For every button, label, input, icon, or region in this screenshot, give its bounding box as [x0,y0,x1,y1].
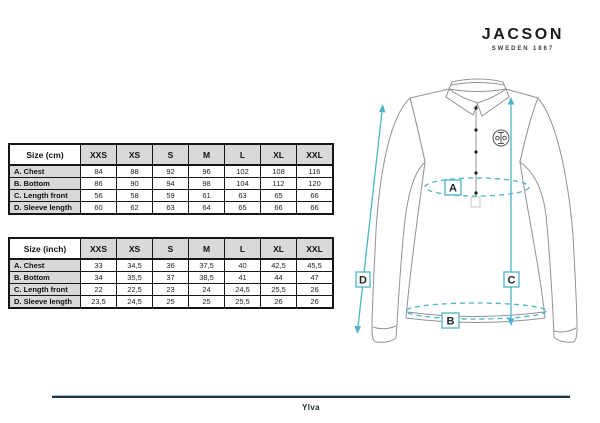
size-table-inch: Size (inch) XXS XS S M L XL XXL A. Chest… [8,237,334,309]
table-row: A. Chest 84 88 92 96 102 108 116 [9,165,333,178]
size-header: XXS [81,144,117,165]
product-name: Ylva [52,403,570,412]
table-row: C. Length front 22 22,5 23 24 24,5 25,5 … [9,284,333,296]
cell: 41 [225,272,261,284]
garment-diagram: A B C D [330,75,600,375]
size-header: XL [261,238,297,259]
cell: 94 [153,178,189,190]
cell: 23 [153,284,189,296]
cell: 26 [261,296,297,309]
cell: 65 [261,190,297,202]
table-header-row: Size (inch) XXS XS S M L XL XXL [9,238,333,259]
table-title: Size (cm) [9,144,81,165]
cell: 61 [189,190,225,202]
cell: 44 [261,272,297,284]
cell: 25,5 [225,296,261,309]
cell: 35,5 [117,272,153,284]
cell: 58 [117,190,153,202]
cell: 63 [225,190,261,202]
cell: 66 [261,202,297,215]
size-header: S [153,238,189,259]
size-header: XL [261,144,297,165]
cell: 24 [189,284,225,296]
size-header: XS [117,238,153,259]
cell: 45,5 [297,259,334,272]
brand-name: JACSON [482,27,564,43]
size-header: XXL [297,144,334,165]
row-label: A. Chest [9,259,81,272]
cell: 66 [297,202,334,215]
cell: 37 [153,272,189,284]
cell: 112 [261,178,297,190]
row-label: D. Sleeve length [9,296,81,309]
row-label: B. Bottom [9,178,81,190]
button-icon [474,128,477,131]
label-c: C [508,275,516,287]
brand-tagline: SWEDEN 1867 [482,46,564,52]
cell: 22,5 [117,284,153,296]
cell: 64 [189,202,225,215]
cell: 25 [153,296,189,309]
table-row: B. Bottom 34 35,5 37 38,5 41 44 47 [9,272,333,284]
arrow-up-icon [379,104,386,113]
row-label: B. Bottom [9,272,81,284]
cell: 59 [153,190,189,202]
cell: 84 [81,165,117,178]
size-header: L [225,144,261,165]
button-icon [474,171,477,174]
size-guide-page: JACSON SWEDEN 1867 Size (cm) XXS XS S M … [0,0,600,423]
cell: 96 [189,165,225,178]
table-row: D. Sleeve length 23,5 24,5 25 25 25,5 26… [9,296,333,309]
cell: 63 [153,202,189,215]
cell: 88 [117,165,153,178]
cell: 26 [297,284,334,296]
brand-logo: JACSON SWEDEN 1867 [482,27,564,52]
size-header: XXL [297,238,334,259]
size-header: XS [117,144,153,165]
cell: 24,5 [225,284,261,296]
table-row: B. Bottom 86 90 94 98 104 112 120 [9,178,333,190]
cell: 38,5 [189,272,225,284]
cell: 65 [225,202,261,215]
cell: 92 [153,165,189,178]
label-a: A [449,183,457,195]
cell: 25,5 [261,284,297,296]
cell: 22 [81,284,117,296]
button-icon [474,191,477,194]
cell: 24,5 [117,296,153,309]
arrow-down-icon [508,319,515,327]
cell: 102 [225,165,261,178]
size-table-cm: Size (cm) XXS XS S M L XL XXL A. Chest 8… [8,143,334,215]
cell: 86 [81,178,117,190]
chest-logo-icon [493,130,509,146]
cell: 34 [81,272,117,284]
collar-band [449,79,506,92]
cell: 37,5 [189,259,225,272]
table-row: A. Chest 33 34,5 36 37,5 40 42,5 45,5 [9,259,333,272]
cell: 66 [297,190,334,202]
button-icon [474,106,477,109]
label-d: D [359,275,367,287]
cell: 108 [261,165,297,178]
row-label: C. Length front [9,284,81,296]
arrow-down-icon [355,326,362,334]
row-label: C. Length front [9,190,81,202]
row-label: D. Sleeve length [9,202,81,215]
size-header: M [189,144,225,165]
cell: 33 [81,259,117,272]
table-header-row: Size (cm) XXS XS S M L XL XXL [9,144,333,165]
size-header: S [153,144,189,165]
row-label: A. Chest [9,165,81,178]
table-title: Size (inch) [9,238,81,259]
cell: 56 [81,190,117,202]
cell: 116 [297,165,334,178]
cell: 98 [189,178,225,190]
cell: 36 [153,259,189,272]
cell: 25 [189,296,225,309]
cell: 26 [297,296,334,309]
table-row: D. Sleeve length 60 62 63 64 65 66 66 [9,202,333,215]
cell: 40 [225,259,261,272]
footer-divider [52,395,570,398]
button-icon [474,150,477,153]
cell: 62 [117,202,153,215]
cell: 120 [297,178,334,190]
cell: 90 [117,178,153,190]
label-b: B [447,316,455,328]
cell: 60 [81,202,117,215]
cell: 23,5 [81,296,117,309]
size-header: M [189,238,225,259]
cell: 47 [297,272,334,284]
table-row: C. Length front 56 58 59 61 63 65 66 [9,190,333,202]
size-header: XXS [81,238,117,259]
size-header: L [225,238,261,259]
cell: 104 [225,178,261,190]
cell: 42,5 [261,259,297,272]
cell: 34,5 [117,259,153,272]
